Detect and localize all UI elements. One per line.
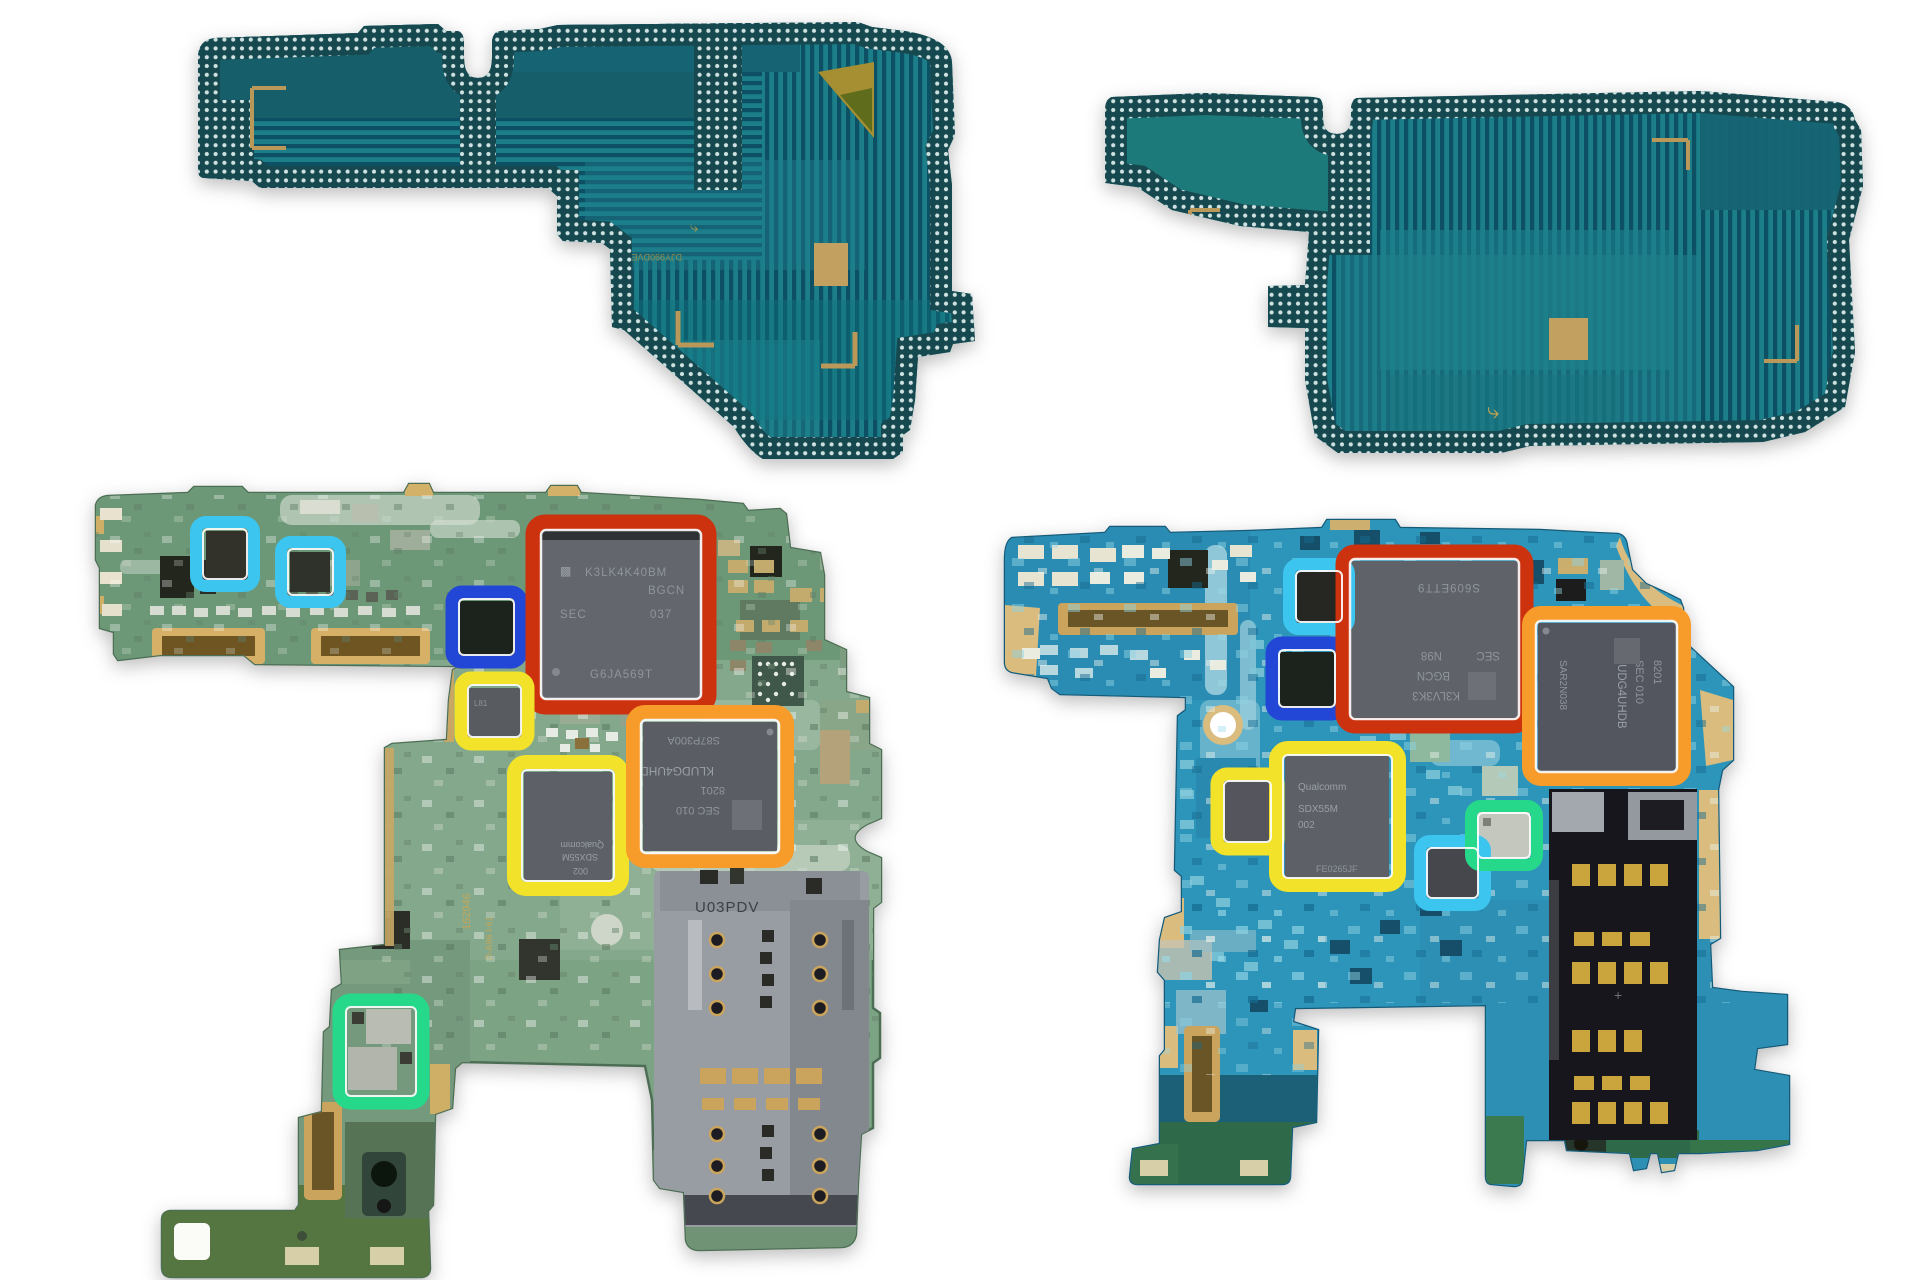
svg-text:Qualcomm: Qualcomm [1298,782,1346,793]
svg-text:8201: 8201 [701,784,725,796]
svg-text:⤷: ⤷ [690,219,699,236]
svg-text:▩: ▩ [560,564,571,578]
svg-text:SEC: SEC [560,609,587,621]
svg-text:DJY990DVE: DJY990DVE [631,252,682,262]
svg-text:G6JA569T: G6JA569T [590,669,653,681]
svg-text:⤷: ⤷ [1487,398,1499,423]
svg-text:037: 037 [650,609,672,621]
svg-text:KLUDG4UHDB: KLUDG4UHDB [632,764,714,778]
svg-text:K3LV3K3: K3LV3K3 [1412,689,1460,701]
svg-text:SAR2N038: SAR2N038 [1557,660,1568,710]
svg-text:002: 002 [1298,820,1315,831]
svg-text:SDX55M: SDX55M [562,852,598,862]
svg-text:+: + [1614,987,1622,1003]
svg-text:S87P300A: S87P300A [667,734,720,746]
svg-text:BGCN: BGCN [1417,669,1450,681]
svg-text:SEC 010: SEC 010 [676,804,720,816]
svg-text:Qualcomm: Qualcomm [560,840,604,850]
svg-text:SDX55M: SDX55M [1298,804,1338,815]
svg-text:K3LK4K40BM: K3LK4K40BM [585,567,667,579]
svg-text:8201: 8201 [1651,660,1663,684]
svg-text:BGCN: BGCN [648,585,685,597]
svg-text:L81: L81 [474,699,488,708]
svg-text:S609ETT9: S609ETT9 [1417,581,1480,593]
svg-text:U03PDV: U03PDV [695,899,759,916]
svg-text:FE0265JF: FE0265JF [1316,864,1358,874]
svg-text:SEC 010: SEC 010 [1633,660,1645,704]
svg-text:SEC: SEC [1476,649,1500,661]
svg-text:N98: N98 [1421,649,1442,661]
svg-text:002: 002 [573,866,588,876]
